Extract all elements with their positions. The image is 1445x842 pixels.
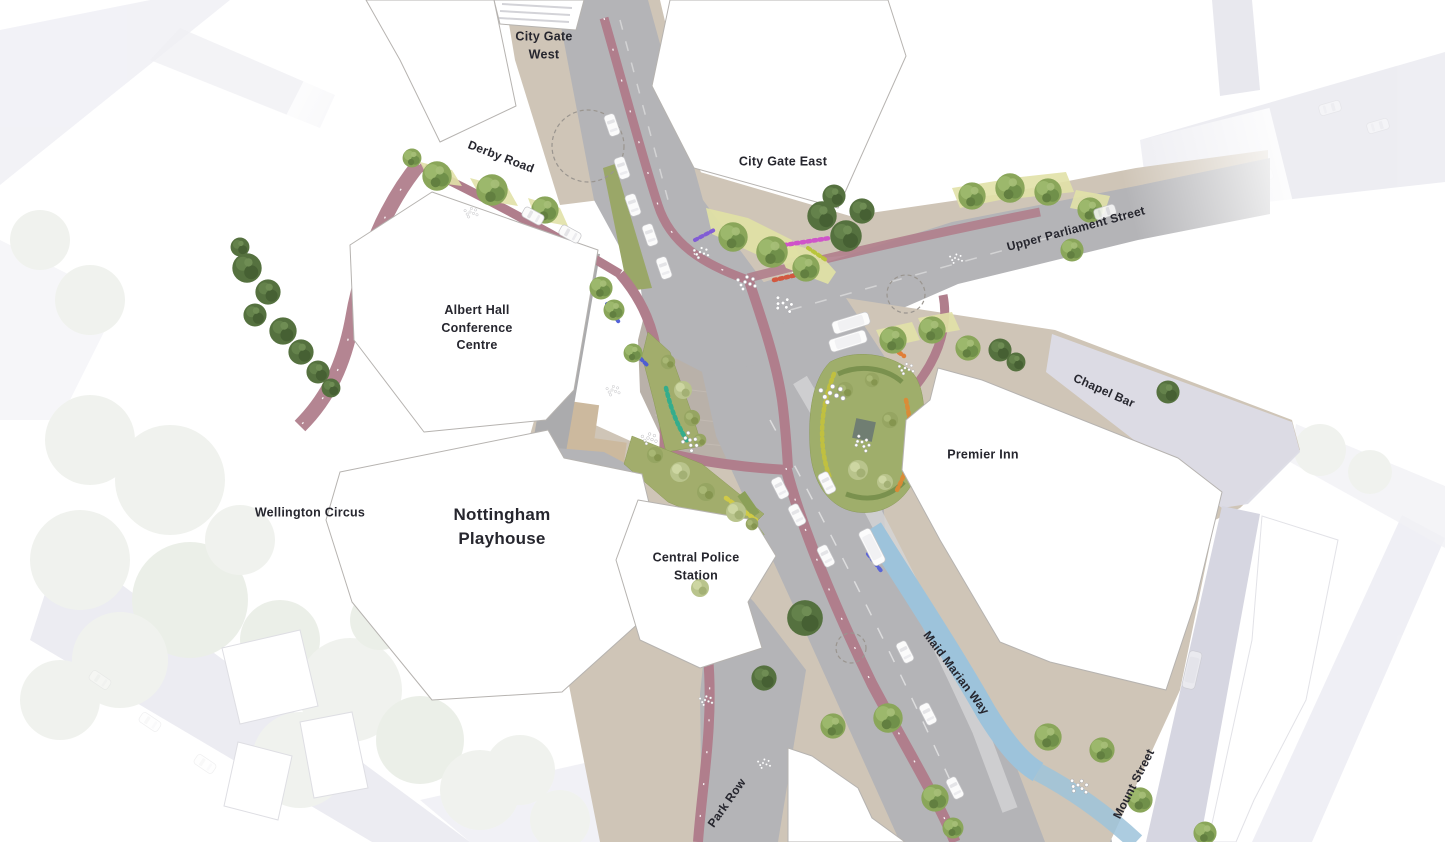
site-plan-svg — [0, 0, 1445, 842]
site-plan-stage: City Gate West City Gate East Derby Road… — [0, 0, 1445, 842]
